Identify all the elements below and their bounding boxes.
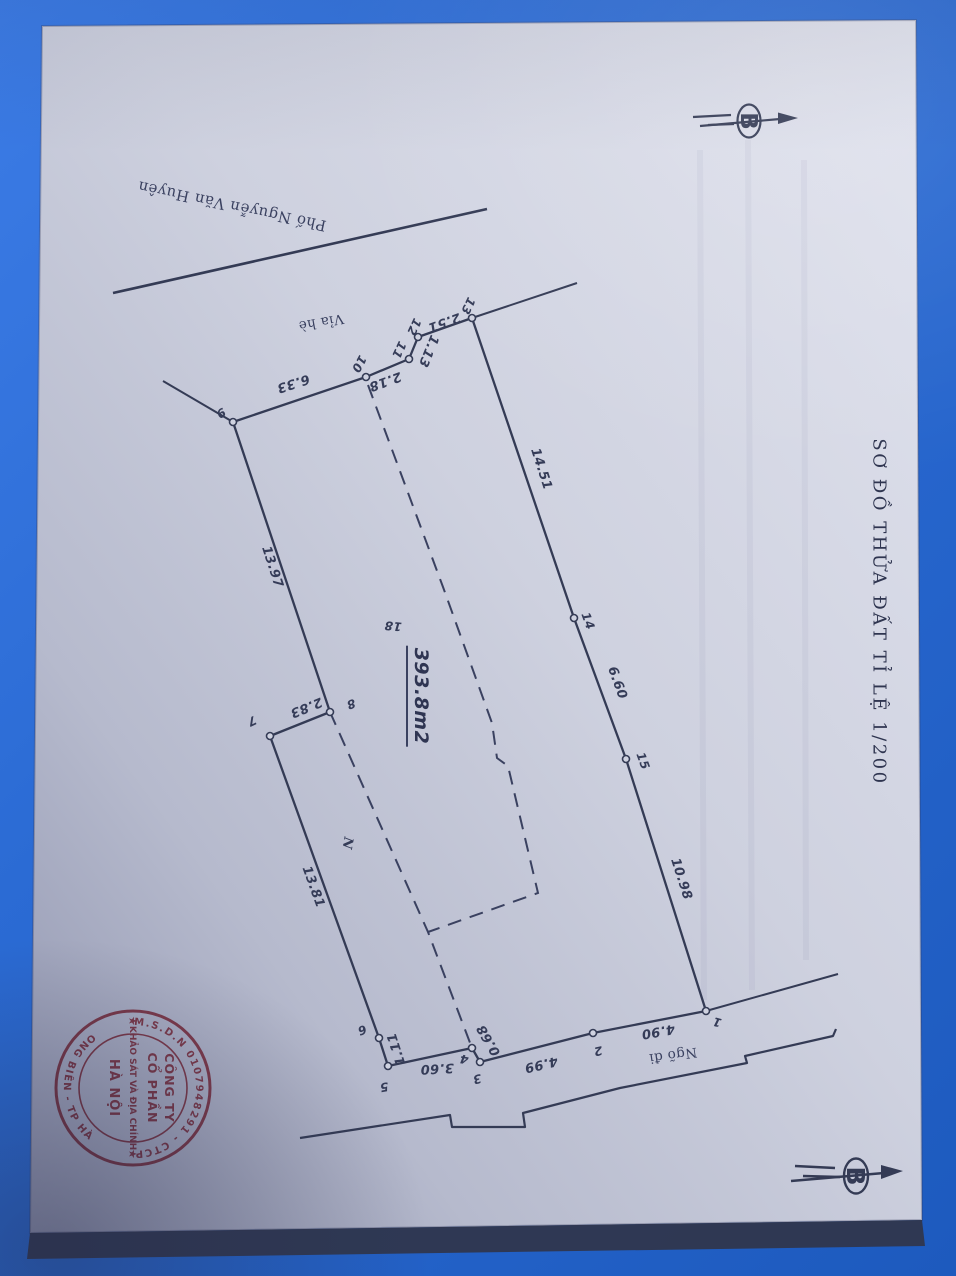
company-stamp: M.S.D.N 0107948291 - CTCP Q. LONG BIÊN -…: [48, 1003, 218, 1173]
stamp-star-left: ★: [126, 1016, 139, 1026]
stamp-line-4: HÀ NỘI: [106, 1059, 122, 1117]
stamp-line-1: CÔNG TY: [162, 1053, 177, 1122]
segment-label-4-5: 3.60: [420, 1060, 454, 1077]
north-letter-top: B: [735, 112, 761, 130]
page-title: SƠ ĐỒ THỬA ĐẤT TỈ LỆ 1/200: [869, 438, 890, 785]
photo-of-cadastral-sketch: B B SƠ ĐỒ THỬA ĐẤT TỈ LỆ 1/200 Phố Nguyễ…: [0, 0, 956, 1276]
house-mark-label: N: [339, 836, 356, 851]
stamp-line-2: CỔ PHẦN: [145, 1053, 162, 1124]
stamp-star-right: ★: [126, 1149, 139, 1159]
stamp-line-3: KHẢO SÁT VÀ ĐỊA CHÍNH: [127, 1026, 139, 1150]
north-letter-bottom: B: [841, 1166, 870, 1185]
parcel-number-label: 18: [384, 618, 403, 633]
area-label: 393.8m2: [406, 646, 432, 747]
